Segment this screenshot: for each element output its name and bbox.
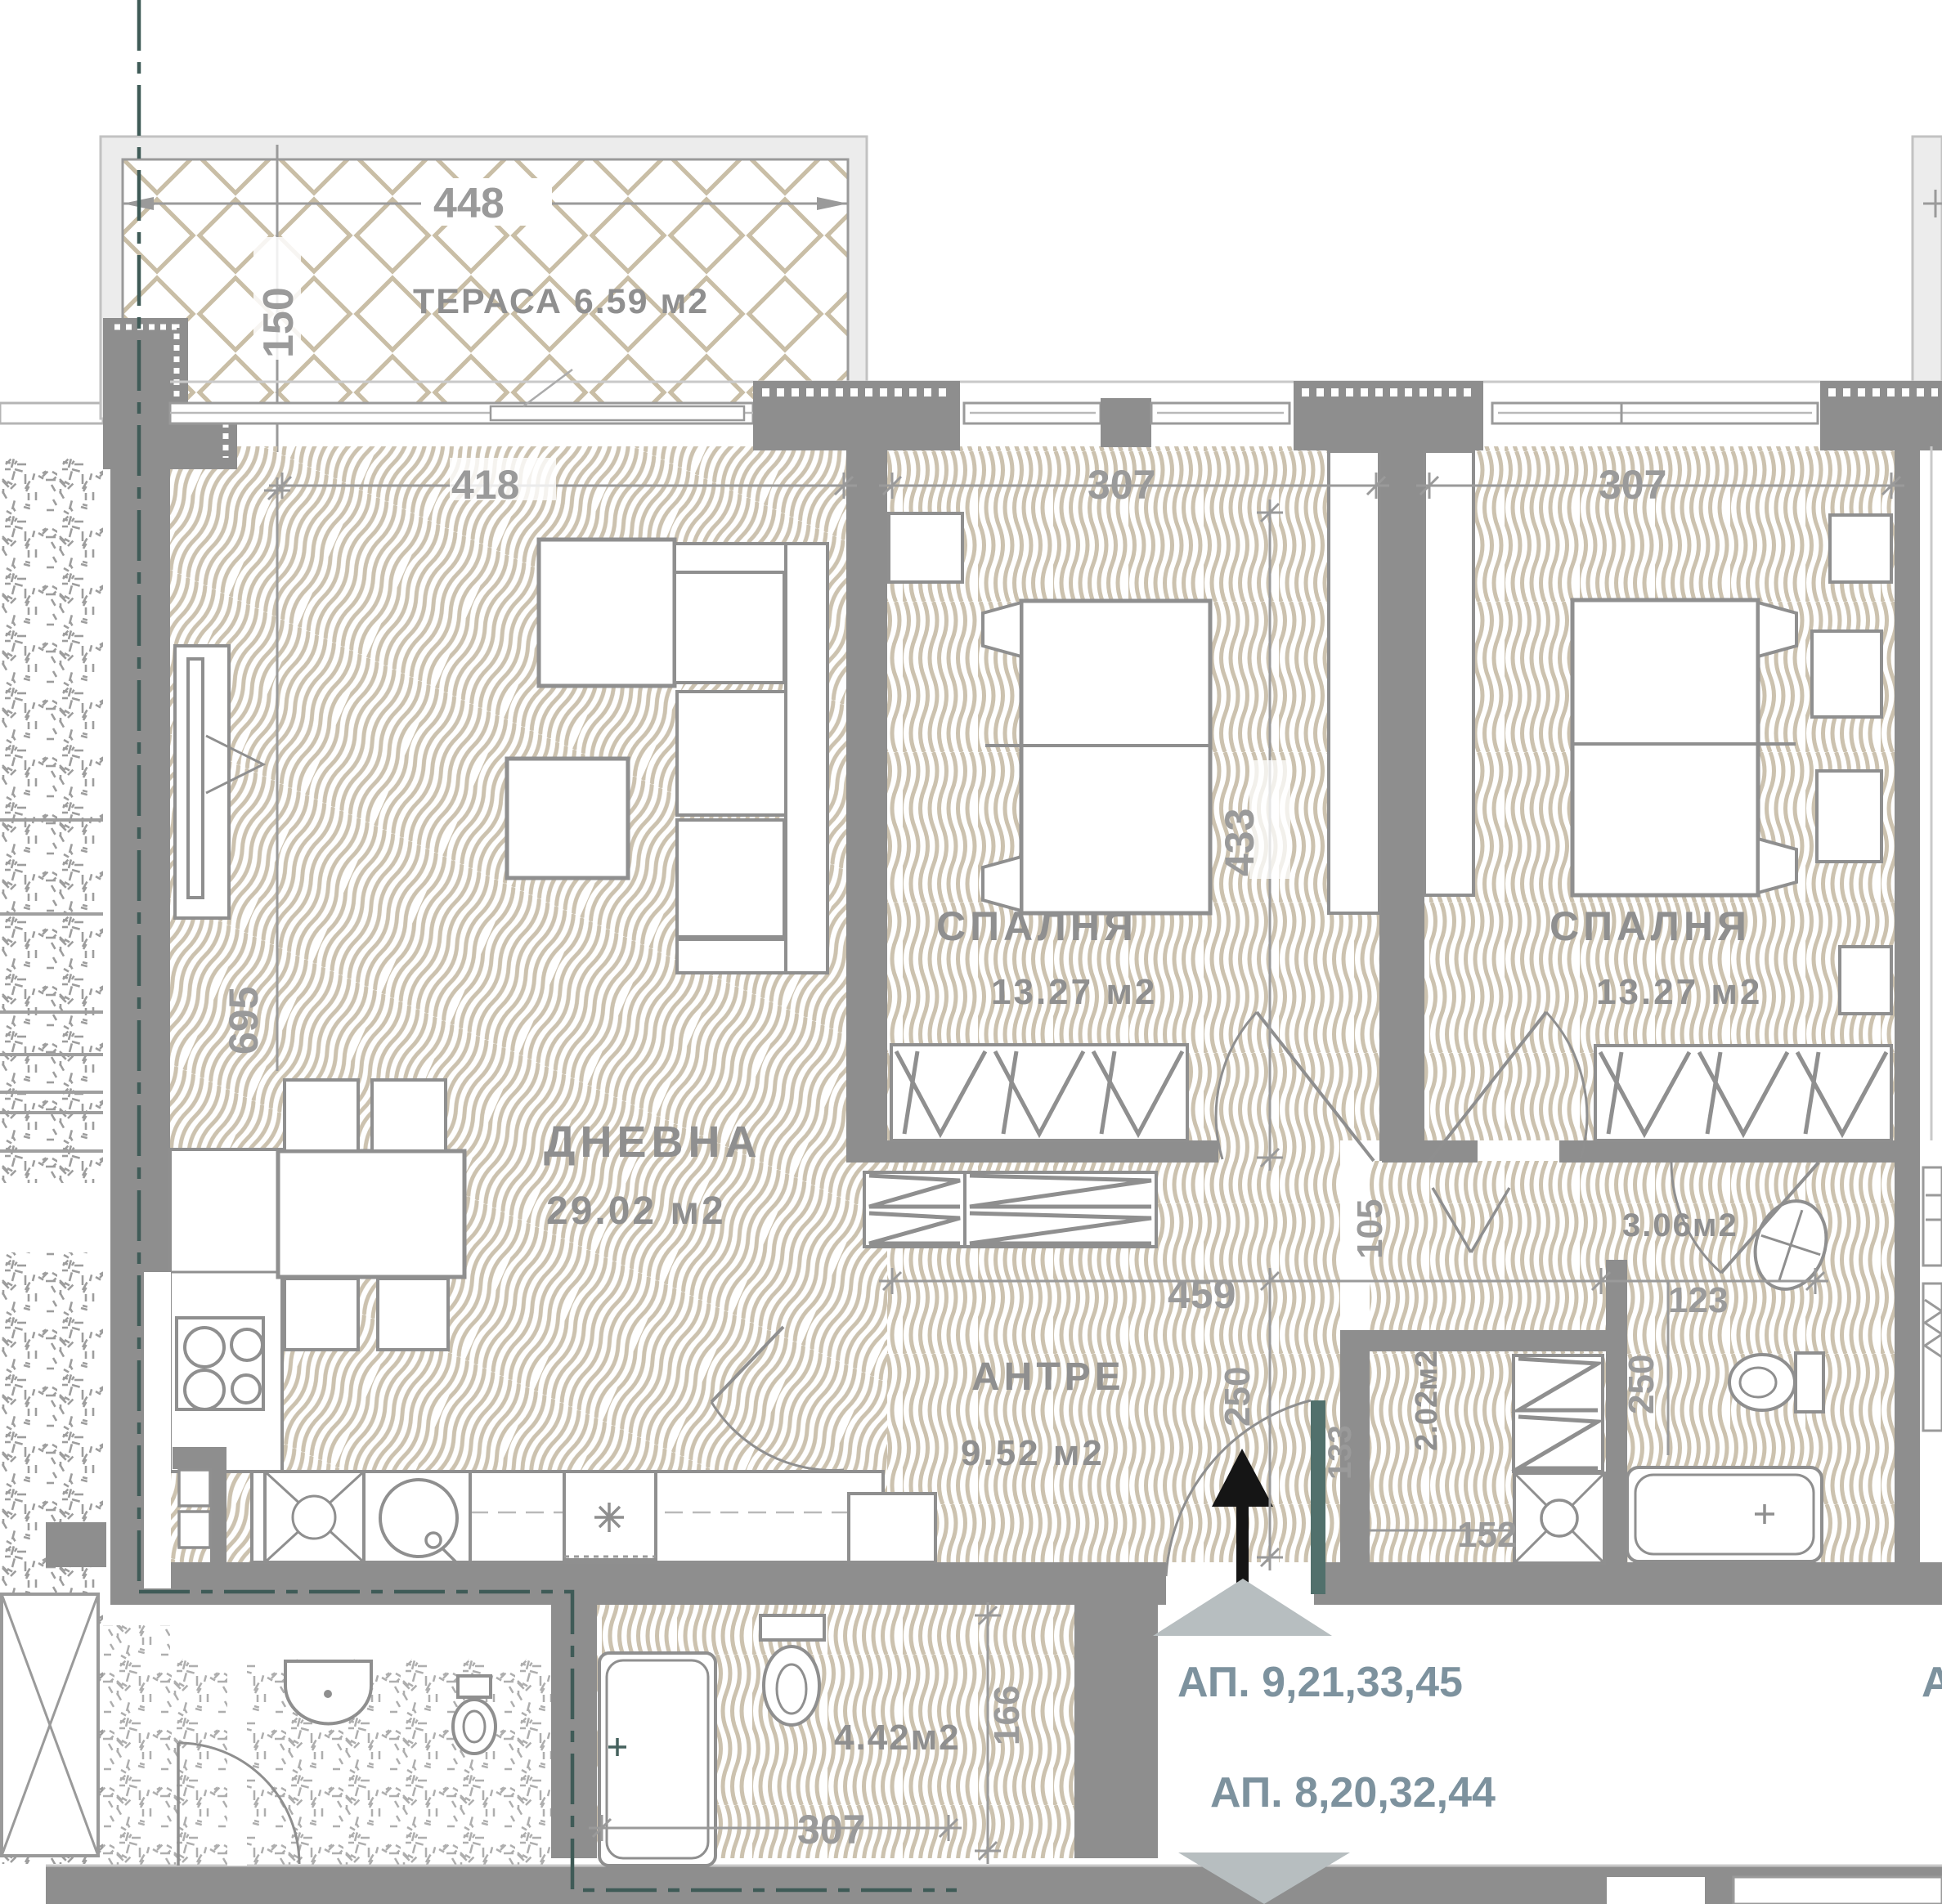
svg-text:418: 418 [451,462,519,508]
svg-text:133: 133 [1322,1425,1358,1480]
svg-text:АП: АП [1922,1659,1942,1706]
svg-text:СПАЛНЯ: СПАЛНЯ [1550,903,1751,949]
svg-text:9.52 м2: 9.52 м2 [961,1433,1105,1473]
svg-text:29.02 м2: 29.02 м2 [546,1189,726,1233]
svg-text:152: 152 [1457,1515,1517,1555]
svg-text:ДНЕВНА: ДНЕВНА [544,1118,761,1167]
svg-text:250: 250 [1218,1367,1258,1427]
svg-text:307: 307 [1088,462,1155,508]
svg-text:250: 250 [1621,1355,1662,1414]
svg-text:123: 123 [1668,1280,1728,1320]
svg-text:13.27 м2: 13.27 м2 [1596,972,1762,1012]
svg-text:2.02м2: 2.02м2 [1410,1351,1444,1451]
svg-text:433: 433 [1217,809,1263,876]
svg-text:АП. 9,21,33,45: АП. 9,21,33,45 [1177,1659,1463,1706]
svg-text:ТЕРАСА 6.59 м2: ТЕРАСА 6.59 м2 [413,282,709,321]
svg-text:459: 459 [1168,1271,1236,1317]
svg-text:АП. 8,20,32,44: АП. 8,20,32,44 [1210,1769,1496,1817]
svg-text:150: 150 [255,287,303,358]
svg-text:448: 448 [433,180,505,227]
svg-text:307: 307 [1599,462,1666,508]
svg-text:695: 695 [221,987,267,1055]
svg-text:АНТРЕ: АНТРЕ [971,1355,1125,1399]
svg-text:СПАЛНЯ: СПАЛНЯ [936,903,1137,949]
svg-text:105: 105 [1350,1199,1390,1259]
svg-text:13.27 м2: 13.27 м2 [991,972,1157,1012]
svg-text:307: 307 [797,1807,865,1852]
svg-text:166: 166 [987,1686,1027,1745]
svg-text:4.42м2: 4.42м2 [834,1718,961,1758]
